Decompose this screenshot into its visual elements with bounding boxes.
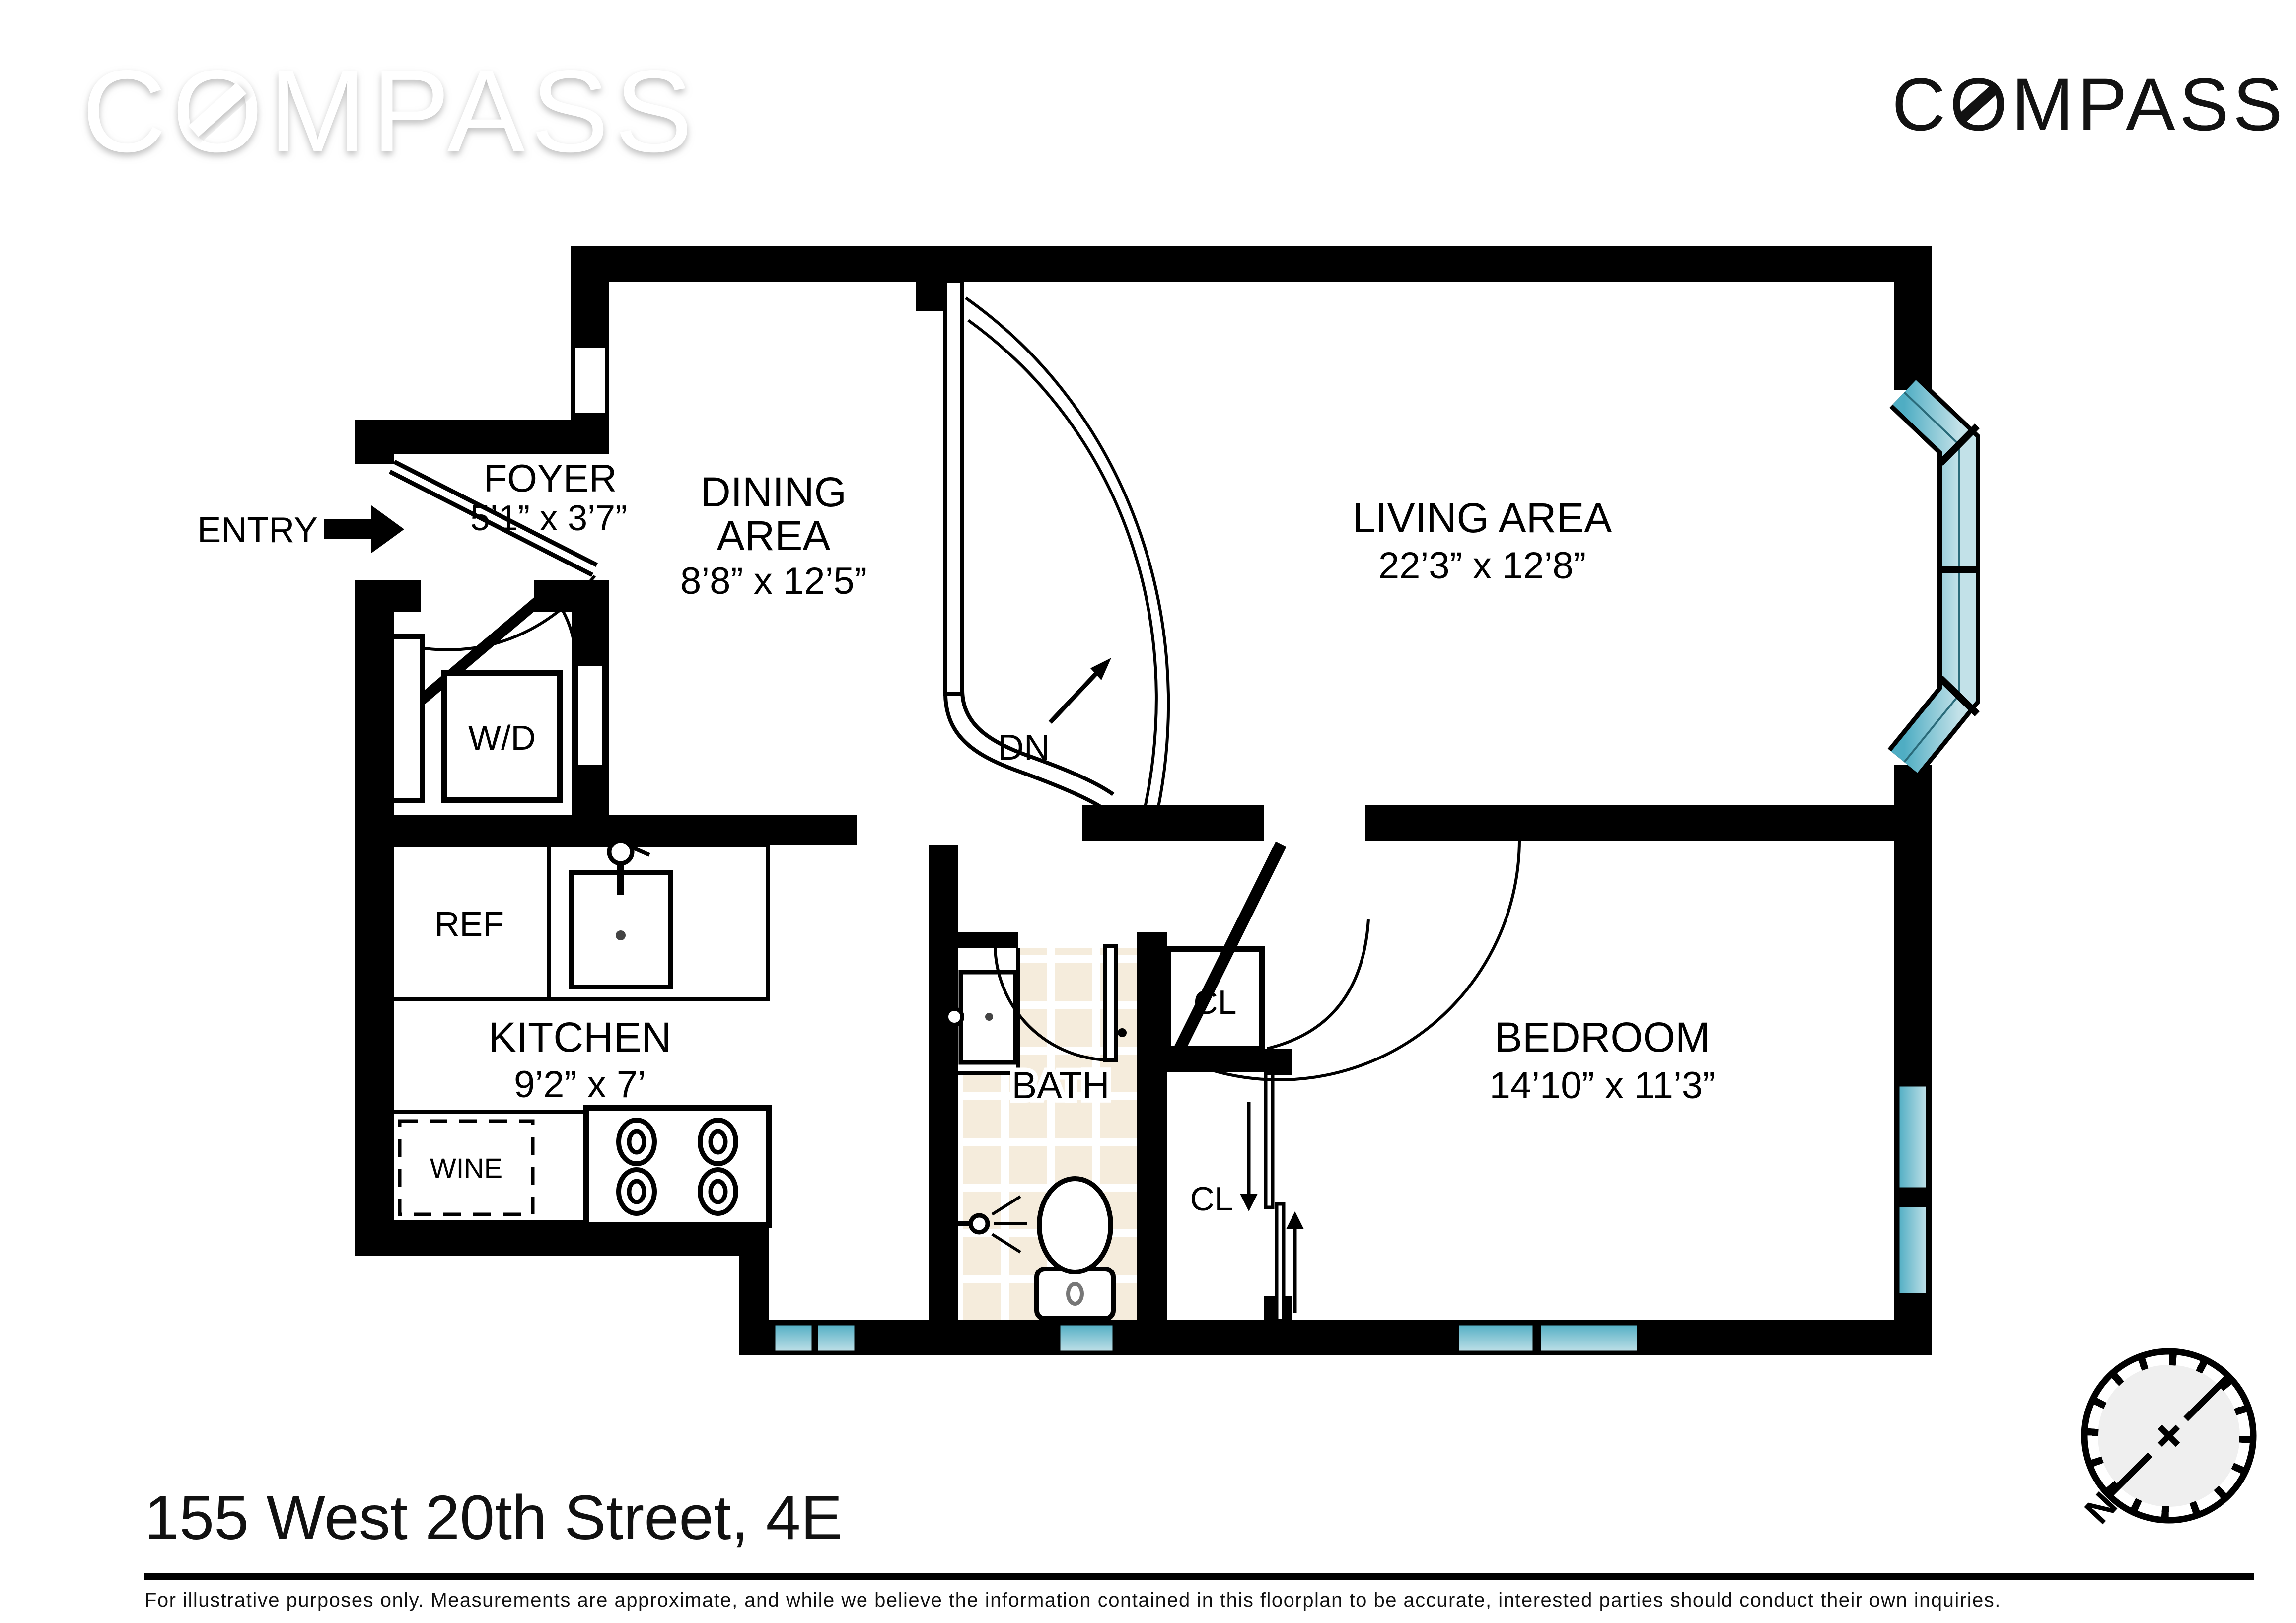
kitchen-label: KITCHEN	[489, 1014, 672, 1060]
entry-label: ENTRY	[197, 510, 318, 550]
bath-door-stop	[1118, 1028, 1127, 1037]
window-kitchen-notch-2	[816, 1324, 856, 1352]
toilet-tank	[1037, 1269, 1113, 1319]
window-bedroom-bottom-1	[1457, 1324, 1534, 1352]
partition-door-leaf	[945, 282, 962, 694]
living-label: LIVING AREA	[1353, 494, 1612, 541]
address-title: 155 West 20th Street, 4E	[144, 1482, 843, 1552]
floorplan-canvas: COMPASS COMPASS	[0, 0, 2296, 1623]
window-kitchen-notch-1	[774, 1324, 813, 1352]
wine-label: WINE	[430, 1152, 502, 1184]
wall-bath-stub	[929, 932, 1018, 948]
wall-kitchen-top	[355, 815, 857, 845]
faucet-icon	[609, 841, 632, 863]
closet-sliding-door	[1240, 1073, 1304, 1321]
wall-left-main	[355, 638, 394, 1222]
compass-logo-text: COMPASS	[1892, 63, 2287, 146]
foyer-label: FOYER	[484, 456, 617, 500]
door-swing-arc-inner	[968, 320, 1156, 807]
wall-hall-right	[1365, 805, 1932, 841]
wall-bath-left	[929, 845, 958, 1320]
wall-niche-inset	[575, 348, 605, 413]
toilet	[1037, 1179, 1113, 1319]
stove-body	[586, 1108, 769, 1225]
slide-arrow-up-head-icon	[1286, 1211, 1304, 1229]
kitchen-dims: 9’2” x 7’	[514, 1063, 646, 1106]
compass-rose-icon: N	[2077, 1351, 2253, 1532]
dining-living-partition	[945, 282, 1168, 809]
wall-hall-left	[1082, 805, 1264, 841]
slide-arrow-down-head-icon	[1240, 1194, 1258, 1211]
wd-shelf	[391, 636, 422, 800]
door-swing-arc-outer	[966, 298, 1168, 809]
entry-arrow-head-icon	[371, 505, 404, 553]
closet-door-arc	[1267, 919, 1368, 1049]
wall-left-mid	[355, 580, 394, 638]
kitchen-sink	[571, 841, 670, 987]
dining-dims: 8’8” x 12’5”	[680, 560, 867, 602]
dn-arrow-line	[1050, 671, 1098, 722]
stair-down-indicator: DN	[998, 658, 1111, 768]
wall-bottom	[739, 1320, 1932, 1355]
disclaimer-text: For illustrative purposes only. Measurem…	[144, 1589, 2001, 1611]
vanity-faucet-icon	[946, 1009, 962, 1025]
window-bedroom-right-2	[1898, 1205, 1928, 1295]
dn-label: DN	[998, 728, 1050, 768]
window-bedroom-bottom-2	[1539, 1324, 1639, 1352]
entry-arrow-shaft-icon	[324, 519, 371, 539]
closet-lower-label: CL	[1190, 1180, 1233, 1218]
wall-bath-right	[1137, 932, 1167, 1320]
kitchen: REF KITCHEN 9’2” x 7’ WINE	[392, 841, 769, 1225]
living-dims: 22’3” x 12’8”	[1378, 545, 1586, 587]
compass-watermark-text: COMPASS	[82, 46, 699, 176]
bath-label: BATH	[1011, 1064, 1109, 1107]
compass-header-logo: COMPASS	[1892, 63, 2287, 146]
bath-door-leaf	[1105, 946, 1116, 1060]
window-bedroom-right-1	[1898, 1085, 1928, 1189]
bedroom-label: BEDROOM	[1495, 1014, 1710, 1060]
toilet-bowl	[1039, 1179, 1111, 1272]
floorplan-page: COMPASS COMPASS	[0, 0, 2296, 1623]
wall-left-stub	[355, 420, 394, 464]
sink-drain	[616, 930, 626, 940]
vanity-drain	[985, 1013, 993, 1021]
wall-closet-jamb-top	[1264, 1049, 1292, 1075]
sliding-panel-2	[1277, 1204, 1284, 1321]
shower-head-icon	[971, 1215, 988, 1232]
dining-label-line1: DINING	[701, 469, 847, 515]
ref-label: REF	[434, 905, 504, 943]
wall-top	[571, 246, 1932, 282]
dining-label-line2: AREA	[717, 512, 831, 559]
foyer-dims: 5’1” x 3’7”	[470, 498, 627, 538]
entry-indicator: ENTRY	[197, 505, 404, 553]
bedroom-dims: 14’10” x 11’3”	[1490, 1064, 1716, 1107]
window-bath	[1059, 1324, 1114, 1352]
sliding-panel-1	[1266, 1073, 1273, 1207]
compass-watermark-logo: COMPASS	[82, 46, 699, 176]
closets: CL CL	[1168, 949, 1304, 1321]
wd-label: W/D	[468, 718, 536, 757]
wall-foyer-bottom-a	[394, 580, 421, 612]
wall-right-top	[1894, 246, 1932, 390]
stove	[586, 1108, 769, 1225]
wd-closet-door-inset	[577, 664, 604, 766]
bay-window	[1904, 392, 1980, 762]
